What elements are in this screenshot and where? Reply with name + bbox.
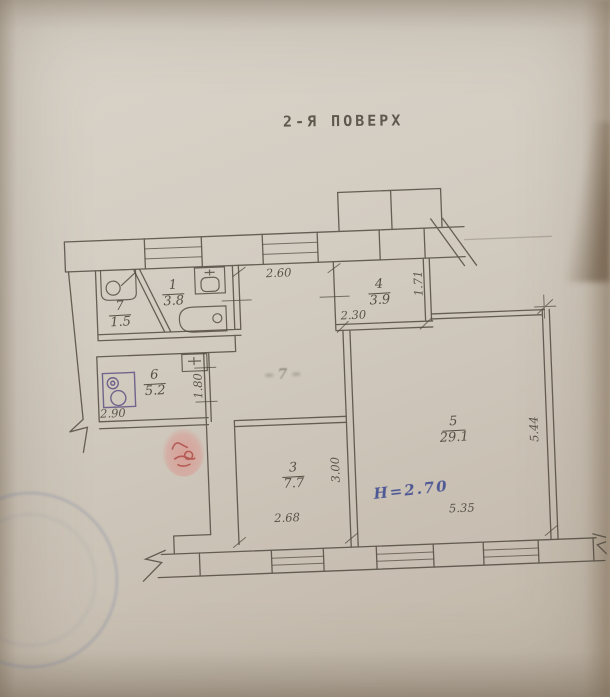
room-label-7: 7 1.5 bbox=[108, 299, 132, 330]
floor-plan-linework bbox=[48, 175, 608, 596]
bathtub-icon bbox=[179, 306, 227, 333]
dim-room3-width: 2.68 bbox=[274, 510, 300, 525]
photo-edge-top bbox=[0, 0, 610, 30]
dim-room5-depth: 5.44 bbox=[526, 416, 541, 442]
room-area: 7.7 bbox=[283, 476, 304, 492]
dim-room5-width: 5.35 bbox=[449, 500, 475, 515]
dim-hall-top: 2.60 bbox=[266, 265, 292, 280]
dim-room4-depth: 1.71 bbox=[411, 270, 426, 296]
room-label-1: 1 3.8 bbox=[161, 278, 185, 309]
toilet-icon bbox=[194, 267, 225, 294]
balcony bbox=[338, 189, 442, 232]
washbasin-icon bbox=[100, 269, 136, 300]
room-area: 3.9 bbox=[369, 293, 390, 309]
red-stamp bbox=[162, 428, 206, 478]
red-stamp-marks bbox=[162, 428, 206, 478]
page-title: 2-Я ПОВЕРХ bbox=[283, 111, 403, 130]
room-label-5: 5 29.1 bbox=[439, 414, 470, 446]
room-label-6: 6 5.2 bbox=[143, 368, 167, 399]
room-area: 1.5 bbox=[110, 315, 131, 331]
dim-kitchen-depth: 1.80 bbox=[190, 373, 205, 399]
photo-edge-bottom bbox=[0, 651, 610, 697]
left-wall-break bbox=[63, 271, 88, 453]
wall-break-top-right bbox=[431, 217, 477, 267]
room-area: 29.1 bbox=[439, 430, 469, 446]
dim-room4-width: 2.30 bbox=[340, 307, 366, 322]
stove-icon bbox=[102, 372, 135, 407]
room-label-3: 3 7.7 bbox=[282, 461, 306, 492]
room-area: 5.2 bbox=[145, 384, 166, 400]
faint-room-mark: 7 bbox=[277, 367, 287, 383]
dim-room3-depth: 3.00 bbox=[328, 457, 343, 483]
dim-kitchen-width: 2.90 bbox=[100, 406, 126, 421]
room-label-4: 4 3.9 bbox=[368, 277, 392, 308]
floor-plan: 7 1.5 1 3.8 4 3.9 6 5.2 3 7.7 5 29.1 7 2… bbox=[48, 175, 608, 596]
room-area: 3.8 bbox=[163, 294, 184, 310]
